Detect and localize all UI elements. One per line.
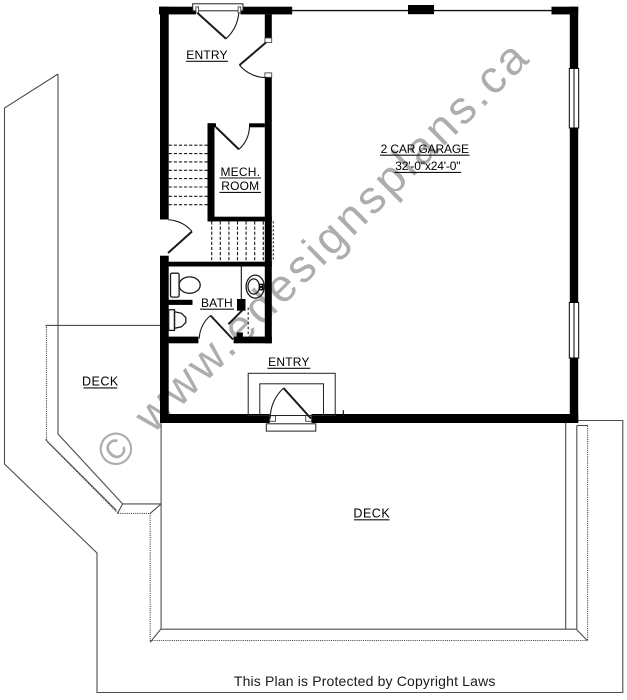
svg-text:32'-0"x24'-0": 32'-0"x24'-0" (395, 159, 460, 173)
svg-text:DECK: DECK (82, 375, 119, 389)
svg-text:BATH: BATH (201, 296, 233, 310)
svg-text:ROOM: ROOM (221, 179, 259, 193)
svg-text:ENTRY: ENTRY (268, 355, 309, 369)
svg-text:This Plan is Protected by Copy: This Plan is Protected by Copyright Laws (234, 673, 496, 689)
svg-text:2 CAR GARAGE: 2 CAR GARAGE (381, 142, 469, 156)
svg-text:MECH.: MECH. (220, 165, 260, 179)
svg-text:ENTRY: ENTRY (186, 48, 227, 62)
svg-text:DECK: DECK (353, 506, 390, 520)
